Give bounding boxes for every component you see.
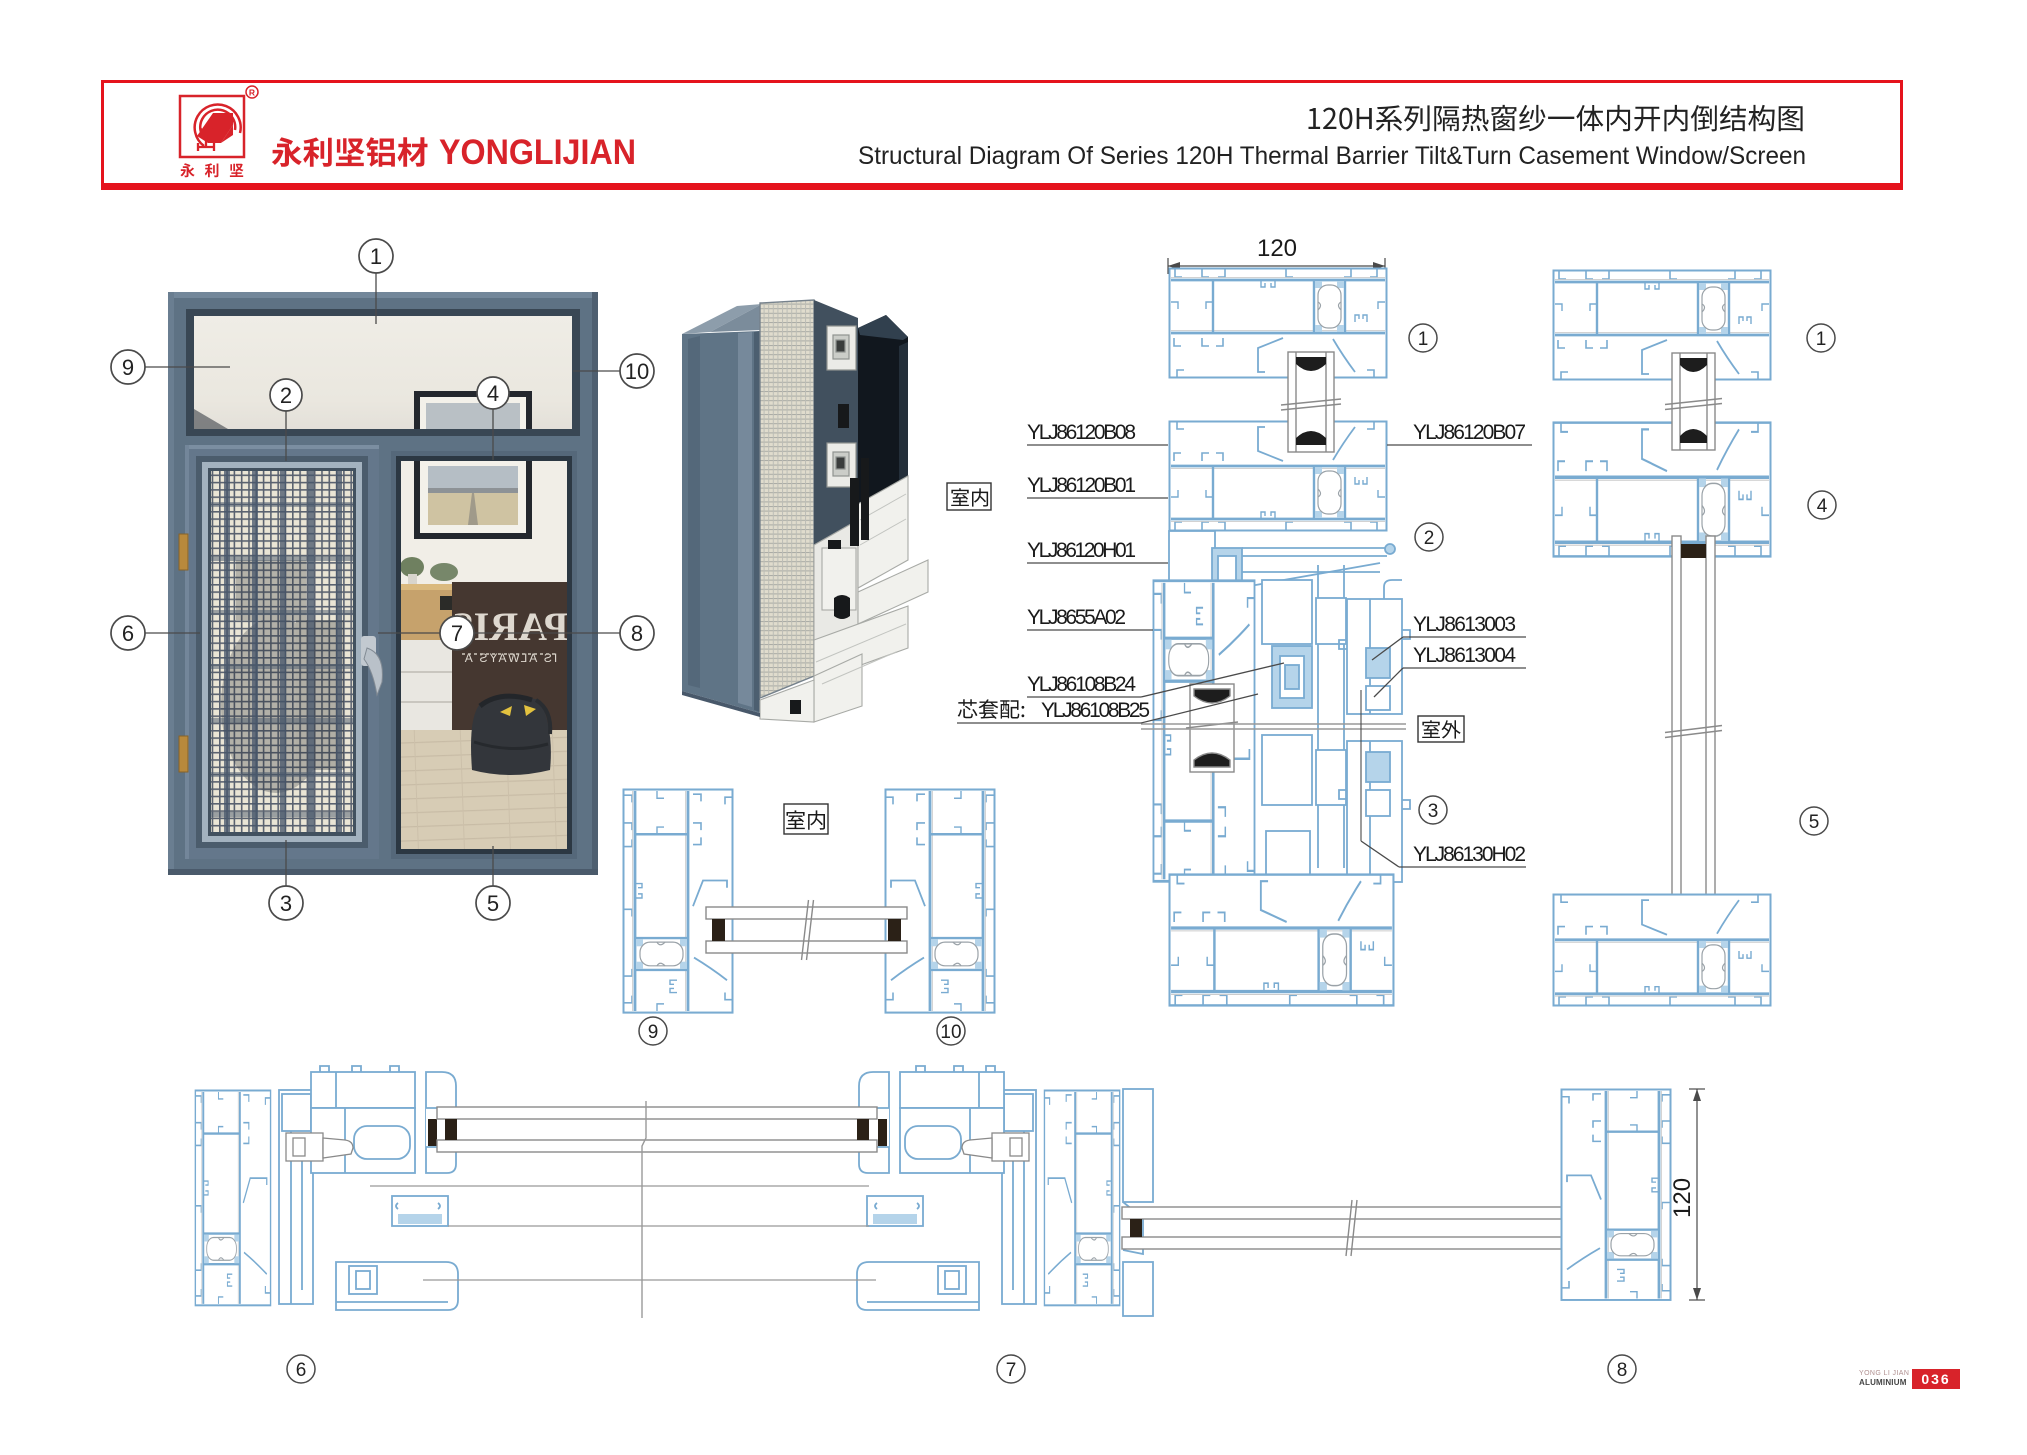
svg-text:3: 3	[280, 891, 292, 916]
svg-text:1: 1	[1418, 329, 1429, 350]
svg-text:9: 9	[122, 355, 134, 380]
svg-text:YLJ86108B25: YLJ86108B25	[1041, 699, 1150, 722]
svg-text:6: 6	[122, 621, 134, 646]
svg-text:8: 8	[631, 621, 643, 646]
svg-text:4: 4	[1817, 496, 1828, 517]
svg-text:7: 7	[1006, 1360, 1017, 1381]
svg-text:9: 9	[648, 1022, 659, 1043]
svg-text:YLJ8613004: YLJ8613004	[1413, 644, 1516, 667]
svg-text:8: 8	[1617, 1360, 1628, 1381]
svg-text:2: 2	[1424, 528, 1435, 549]
svg-text:YLJ86120H01: YLJ86120H01	[1027, 539, 1136, 562]
svg-text:6: 6	[296, 1360, 307, 1381]
svg-text:120: 120	[1669, 1178, 1696, 1218]
svg-text:5: 5	[487, 891, 499, 916]
svg-text:YLJ86130H02: YLJ86130H02	[1413, 843, 1526, 866]
svg-text:YLJ86120B07: YLJ86120B07	[1413, 421, 1526, 444]
svg-text:10: 10	[625, 359, 649, 384]
svg-text:YLJ86120B08: YLJ86120B08	[1027, 421, 1136, 444]
svg-text:120: 120	[1257, 235, 1297, 262]
svg-text:YLJ8655A02: YLJ8655A02	[1027, 606, 1126, 629]
svg-text:YLJ86120B01: YLJ86120B01	[1027, 474, 1136, 497]
svg-text:YLJ8613003: YLJ8613003	[1413, 613, 1516, 636]
svg-text:5: 5	[1809, 812, 1820, 833]
svg-text:4: 4	[487, 381, 499, 406]
svg-text:7: 7	[451, 621, 463, 646]
svg-text:10: 10	[940, 1022, 961, 1043]
svg-text:1: 1	[370, 244, 382, 269]
svg-text:2: 2	[280, 383, 292, 408]
svg-text:YLJ86108B24: YLJ86108B24	[1027, 673, 1136, 696]
svg-text:3: 3	[1428, 801, 1439, 822]
svg-text:1: 1	[1816, 329, 1827, 350]
